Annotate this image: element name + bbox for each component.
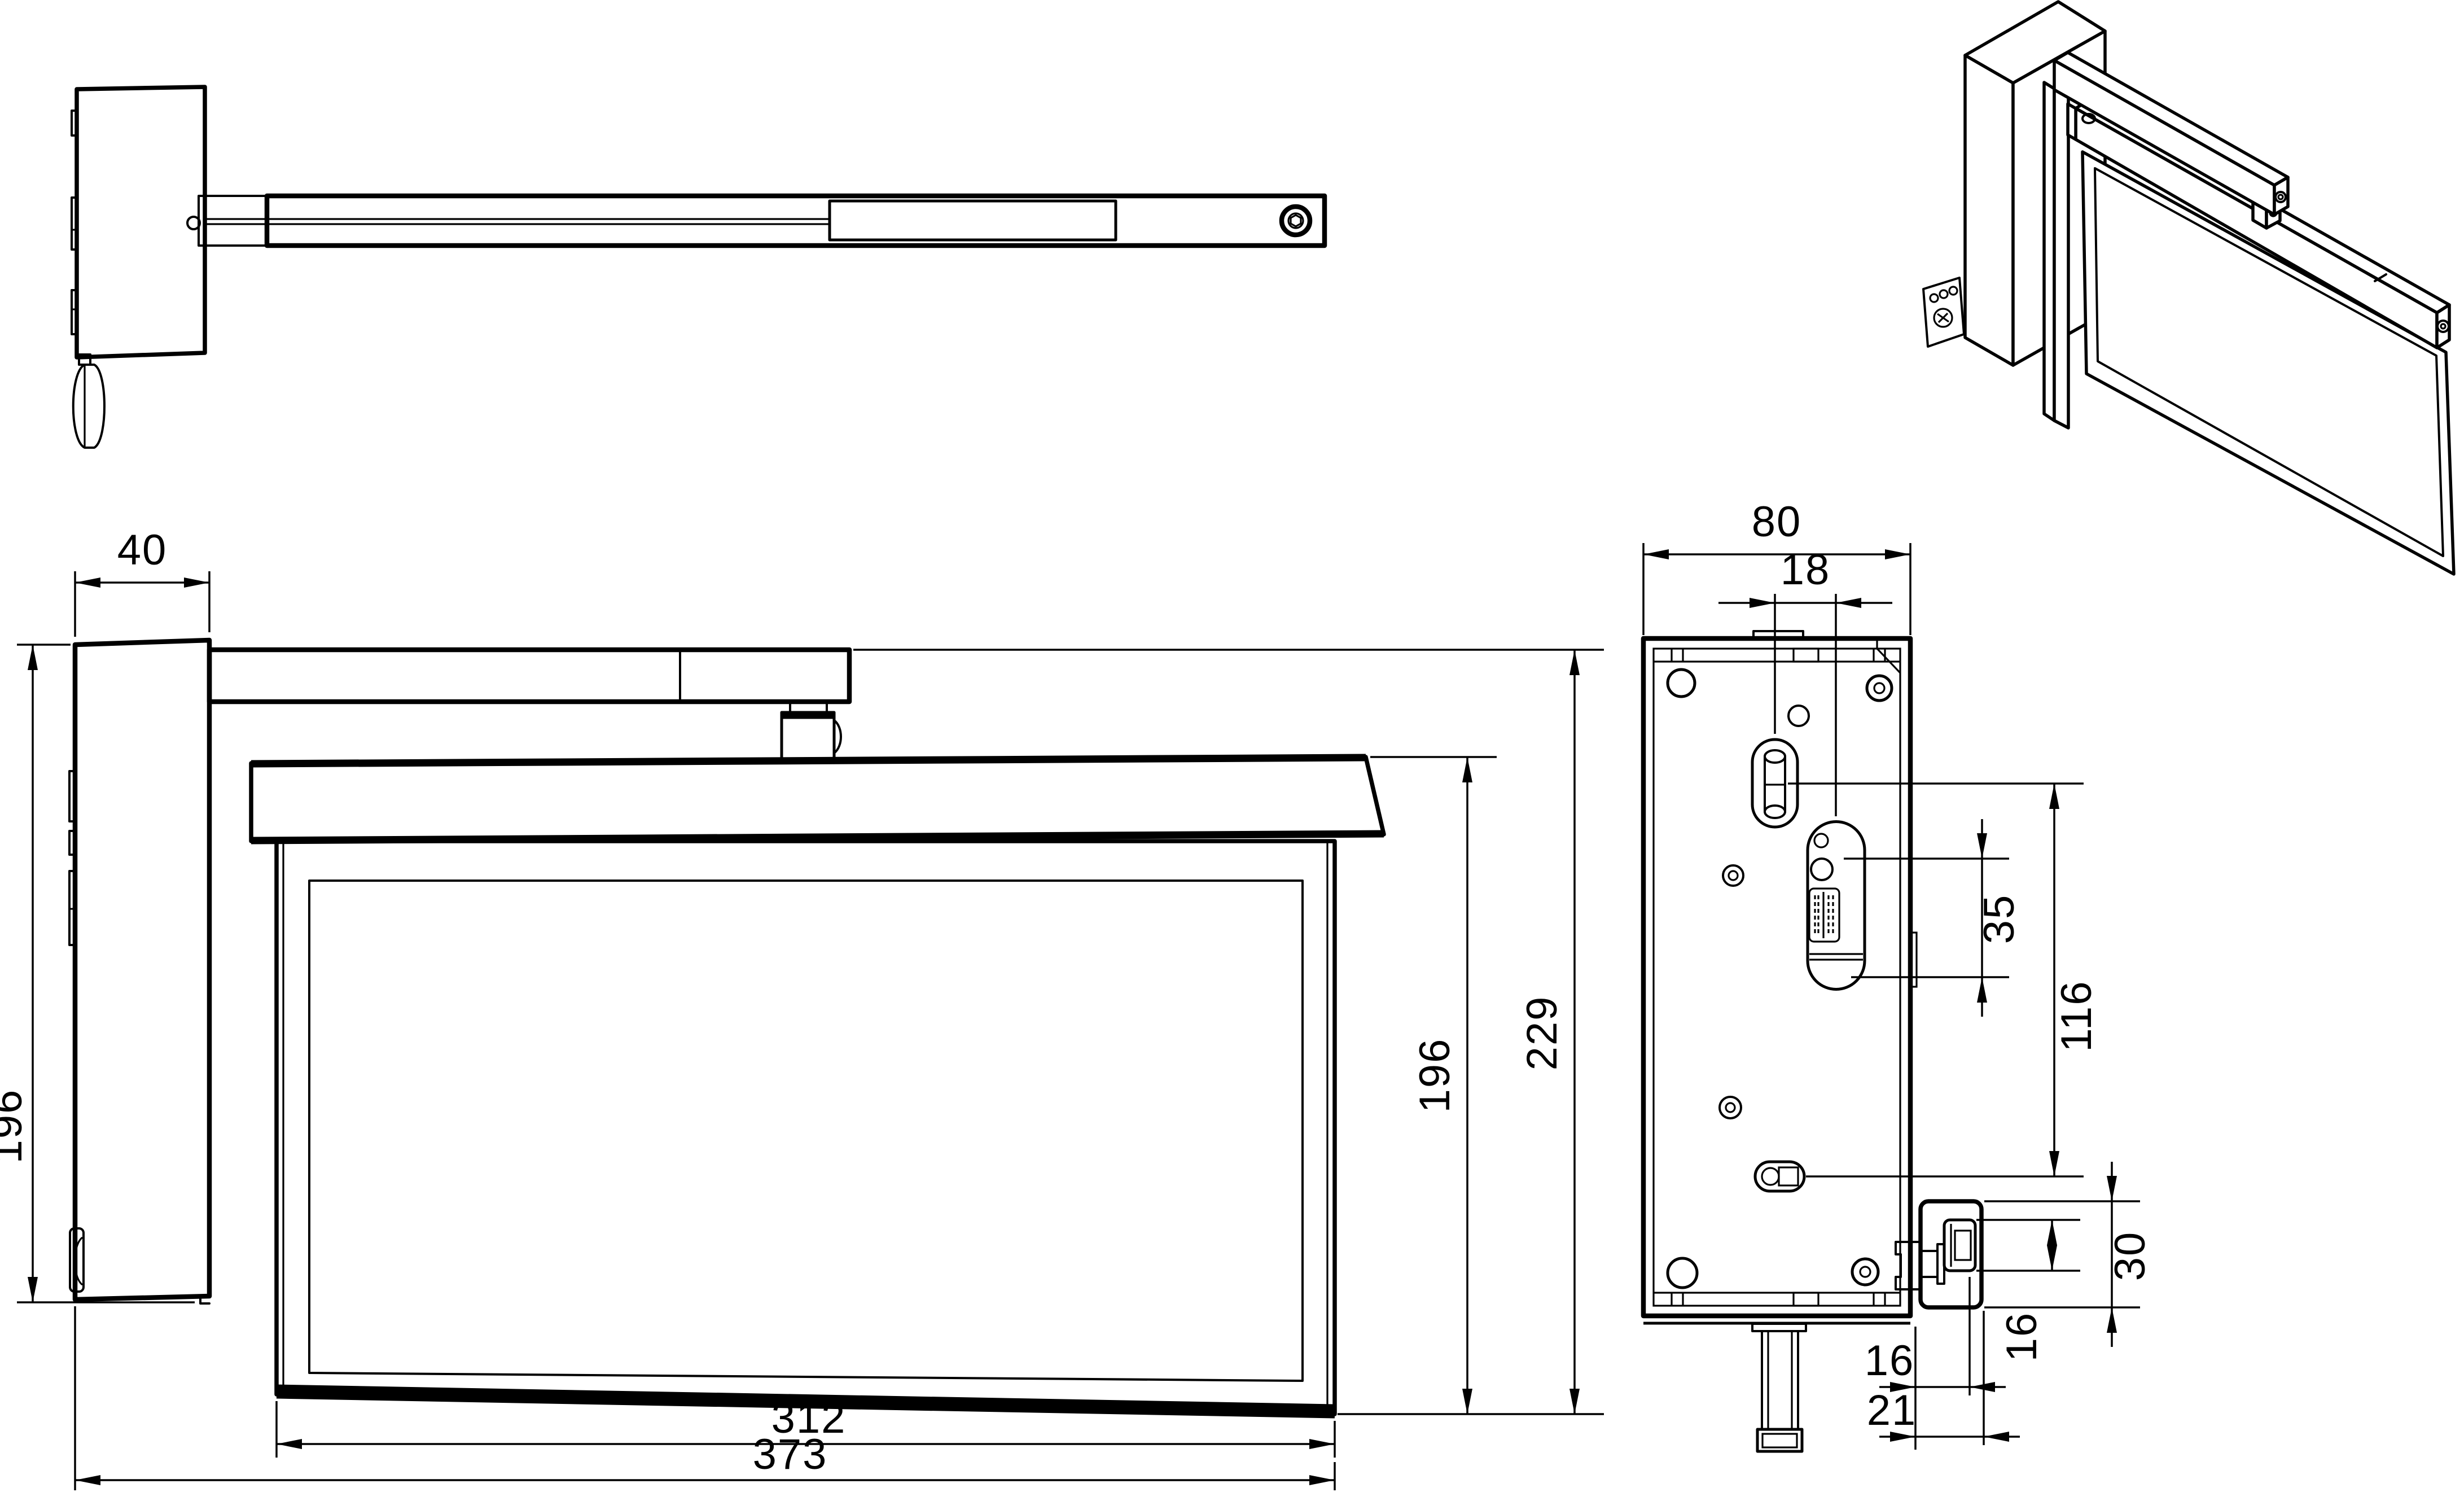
view-back-plate: 80 18 116 35 30 xyxy=(1643,498,2154,1451)
cable-clip-top xyxy=(73,355,104,448)
washer-mid-left xyxy=(1723,865,1743,886)
washer-lower-left xyxy=(1720,1097,1741,1118)
top-tab xyxy=(1753,631,1803,638)
dim-front-bracket-depth: 40 xyxy=(117,526,168,574)
pivot-block-front xyxy=(782,702,841,762)
wall-plate-front xyxy=(69,640,209,1303)
technical-drawing: 40 196 196 229 312 373 xyxy=(0,0,2464,1492)
hole-upper-center xyxy=(1788,706,1809,726)
view-isometric xyxy=(1923,2,2454,574)
mounting-plate xyxy=(1643,631,1981,1451)
dim-back-plate-width: 80 xyxy=(1752,498,1802,546)
display-window xyxy=(309,881,1303,1381)
dimension-bracket-height: 196 xyxy=(0,645,195,1302)
dim-front-overall-width: 373 xyxy=(753,1430,828,1478)
dimension-bracket-depth: 40 xyxy=(75,526,209,637)
dim-back-pin-spacing: 116 xyxy=(2053,980,2101,1052)
swing-arm-top xyxy=(199,196,1325,246)
screw-top-right xyxy=(1867,676,1892,701)
dimension-panel-height: 196 xyxy=(1370,757,1497,1414)
dim-front-panel-height: 196 xyxy=(1411,1038,1459,1113)
view-top xyxy=(72,87,1325,448)
dim-back-slot-span: 35 xyxy=(1975,894,2023,944)
mount-hole-top-left xyxy=(1668,670,1695,697)
drawing-sheet: 40 196 196 229 312 373 xyxy=(0,0,2464,1492)
dimension-plate-width: 80 xyxy=(1643,498,1910,635)
dim-back-bolt-span: 16 xyxy=(1998,1312,2046,1362)
arm-end-screw-icon xyxy=(1282,207,1310,235)
product-label-iso xyxy=(1923,278,1964,347)
dim-front-bracket-height: 196 xyxy=(0,1089,31,1164)
dim-back-hinge-height: 30 xyxy=(2106,1231,2154,1281)
product-label xyxy=(1809,889,1839,942)
lower-pivot-slot xyxy=(1755,1162,1804,1191)
dimension-pin-offset: 18 xyxy=(1718,546,1892,816)
dim-front-overall-height: 229 xyxy=(1518,996,1566,1071)
mount-post-iso xyxy=(2044,82,2068,428)
dimension-bolt-span: 16 xyxy=(1976,1220,2080,1362)
component-obround xyxy=(1808,822,1865,990)
view-front: 40 196 196 229 312 373 xyxy=(0,526,1604,1490)
screw-bottom-right xyxy=(1852,1259,1878,1285)
dimension-overall-height: 229 xyxy=(853,650,1604,1414)
swing-arm-front xyxy=(209,650,849,702)
dim-back-pin-offset: 18 xyxy=(1781,546,1831,594)
dim-back-block-offset: 21 xyxy=(1867,1386,1917,1434)
wall-plate-top xyxy=(72,87,205,448)
dimension-pin-spacing: 116 xyxy=(1788,784,2101,1176)
mount-hole-bottom-left xyxy=(1668,1258,1697,1288)
cable-tube xyxy=(1752,1324,1806,1451)
dimension-slot-span: 35 xyxy=(1844,819,2023,1017)
top-cover-front xyxy=(251,757,1384,841)
dim-back-pivot-offset: 16 xyxy=(1865,1337,1915,1385)
sign-panel-front xyxy=(277,841,1335,1415)
